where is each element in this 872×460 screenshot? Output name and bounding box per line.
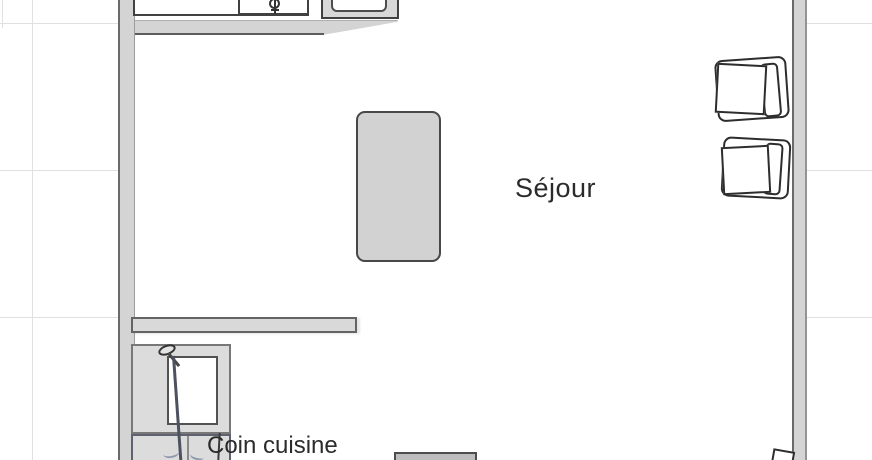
room-label-living-room: Séjour: [515, 173, 596, 204]
room-label-kitchen-corner: Coin cuisine: [207, 432, 338, 460]
wall-right: [792, 0, 807, 460]
dining-table: [356, 111, 441, 262]
sink-drain-icon: [274, 0, 276, 14]
sink-drain-icon: [271, 9, 279, 11]
chair-seat: [715, 63, 768, 116]
grid-line-vertical: [32, 0, 33, 460]
kitchenette-cabinet-divider: [187, 436, 189, 460]
floor-plan-canvas: Séjour Coin cuisine: [0, 0, 872, 460]
wall-partition: [131, 317, 357, 333]
chair-seat: [721, 145, 771, 195]
room-interior: [135, 0, 792, 460]
grid-line-vertical-stub: [2, 0, 3, 28]
cooktop-inner-panel: [331, 0, 387, 12]
sideboard-partial: [394, 452, 477, 460]
wall-top-edge: [133, 33, 324, 35]
wall-top-highlight: [135, 20, 397, 21]
